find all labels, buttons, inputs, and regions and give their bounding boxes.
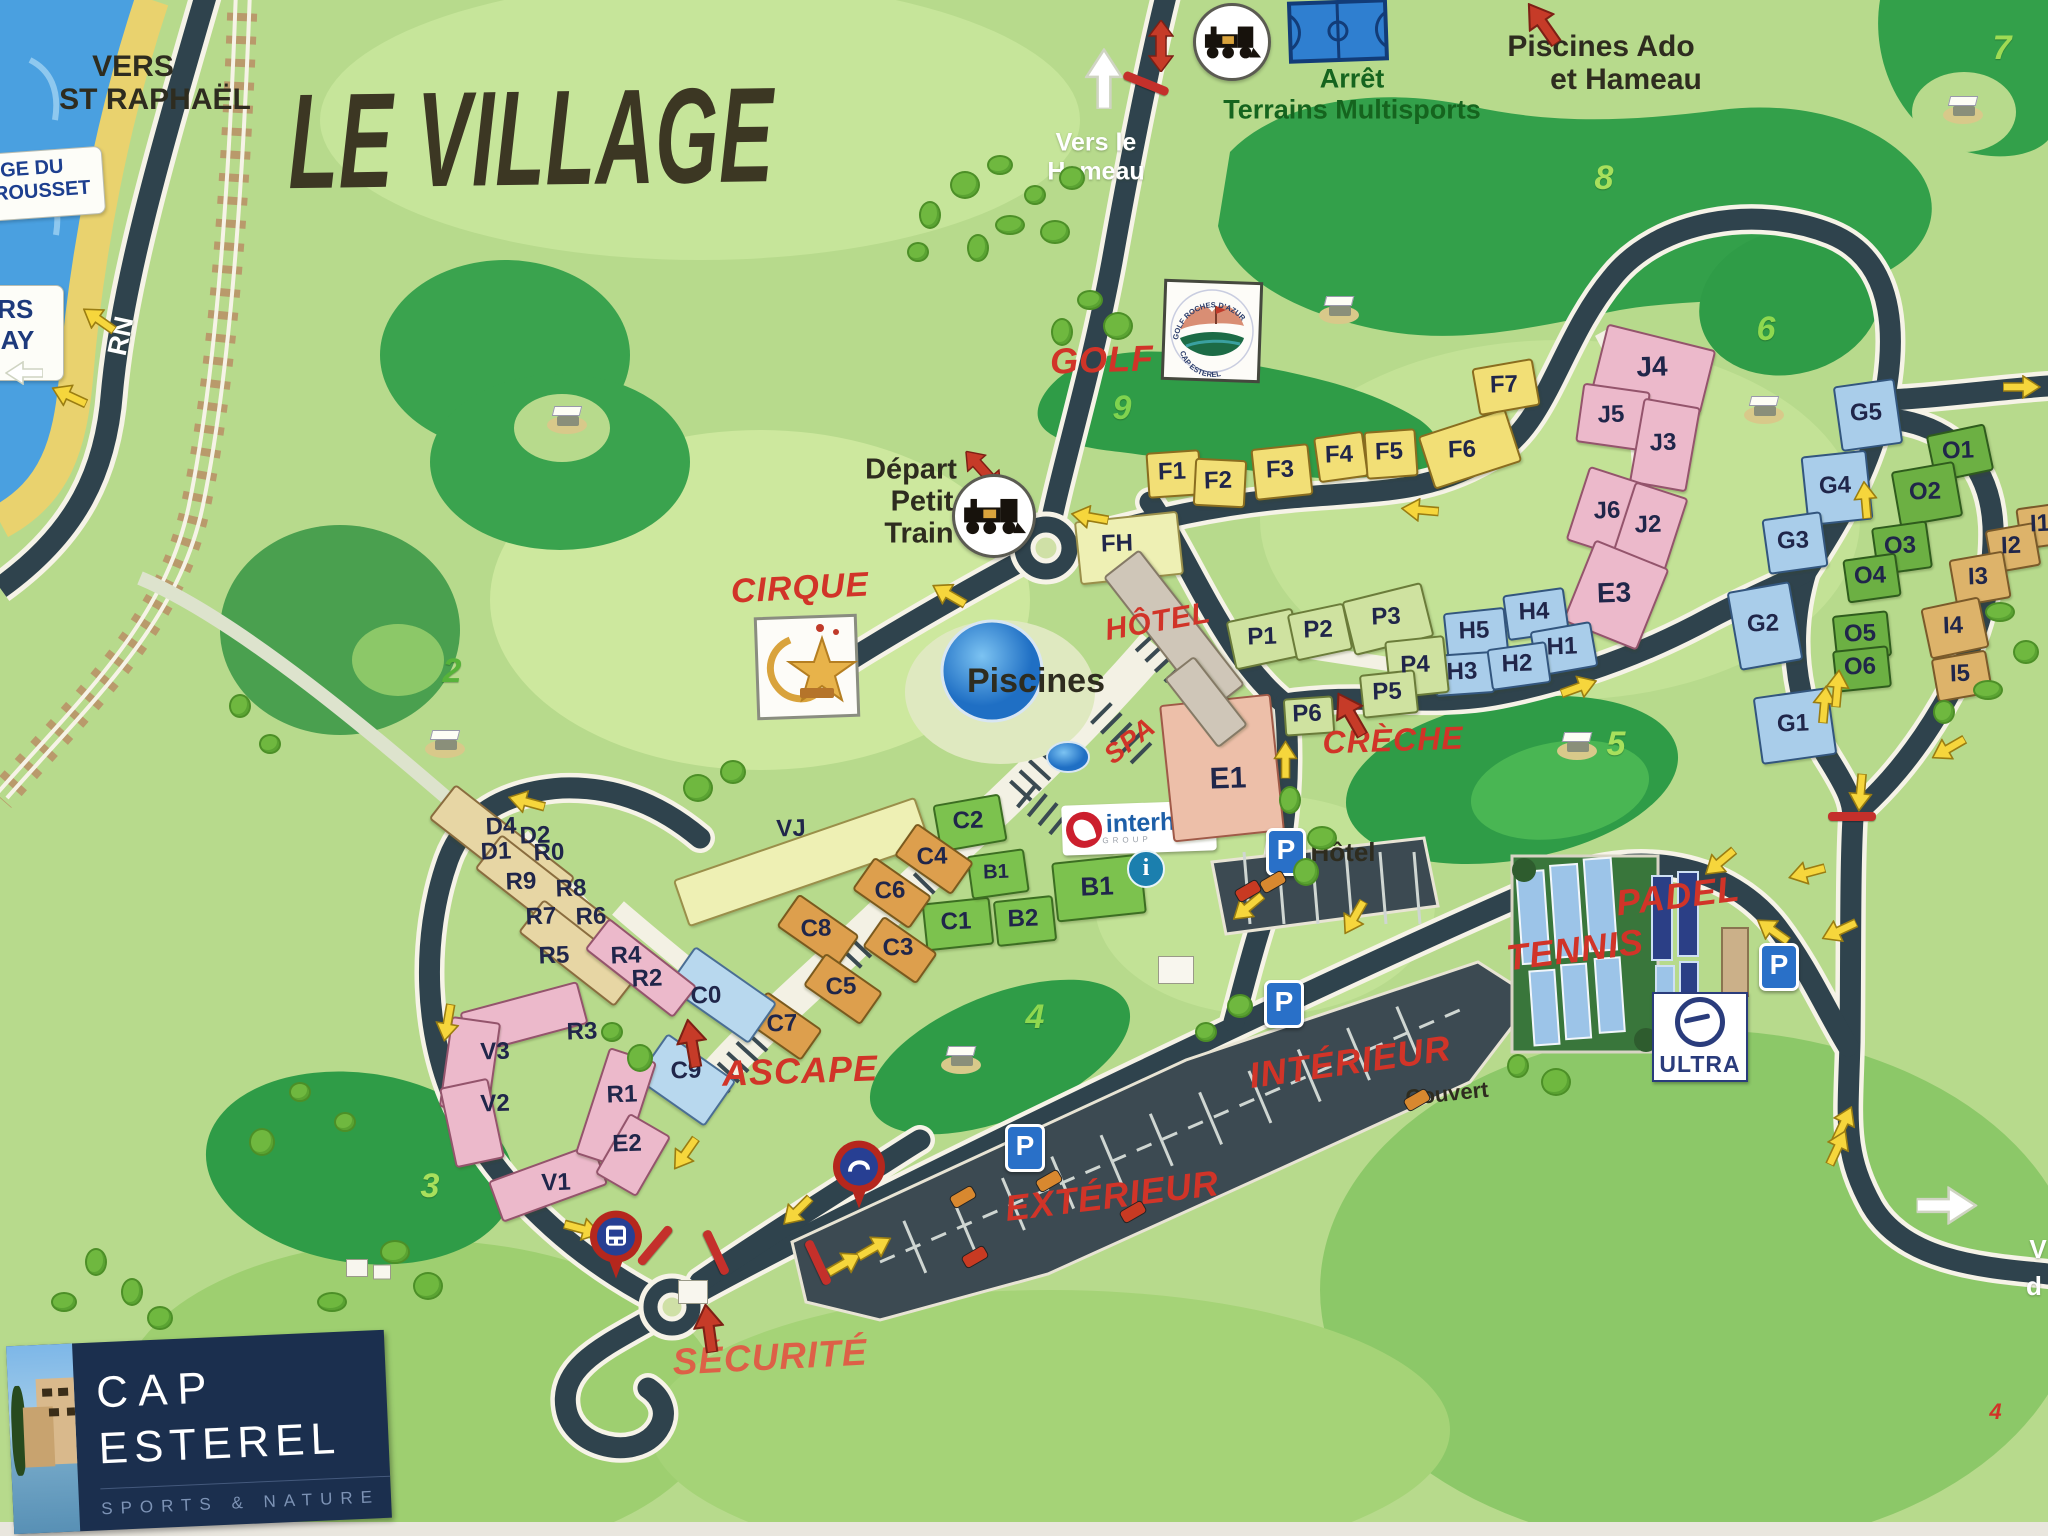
bush-icon <box>950 171 980 199</box>
bush-icon <box>1227 994 1253 1018</box>
building-label-F6: F6 <box>1448 438 1477 463</box>
building-label-I2: I2 <box>2001 534 2022 559</box>
service-building <box>678 1280 708 1304</box>
traffic-arrow <box>1400 491 1440 523</box>
label-v: V <box>2029 1236 2046 1262</box>
bush-icon <box>907 242 929 262</box>
building-label-F3: F3 <box>1266 458 1295 483</box>
label-d: d <box>2026 1273 2042 1299</box>
building-label-C5: C5 <box>825 974 857 999</box>
building-label-B1: B1 <box>983 862 1009 883</box>
building-label-R3: R3 <box>566 1019 598 1044</box>
map-title: LE VILLAGE <box>288 59 774 221</box>
sign-plage-line2: POURROUSSET <box>0 176 104 212</box>
building-label-I5: I5 <box>1950 662 1971 687</box>
bush-icon <box>1024 185 1046 205</box>
golf-cart-icon <box>1325 296 1355 320</box>
building-label-H3: H3 <box>1446 659 1478 684</box>
building-label-C3: C3 <box>882 935 914 960</box>
building-label-D1: D1 <box>480 839 512 864</box>
building-label-F1: F1 <box>1158 460 1187 485</box>
golf-club-logo: GOLF ROCHES D'AZUR CAP ESTEREL <box>1162 280 1261 381</box>
building-label-G4: G4 <box>1819 473 1852 498</box>
building-label-V2: V2 <box>480 1091 510 1116</box>
building-label-C6: C6 <box>874 878 906 903</box>
cap-logo-line2: ESTEREL <box>98 1412 390 1475</box>
building-label-VJ: VJ <box>776 816 806 841</box>
building-label-E2: E2 <box>612 1131 642 1156</box>
building-label-F4: F4 <box>1325 443 1354 468</box>
cap-logo-tagline: SPORTS & NATURE <box>100 1476 391 1520</box>
zone-number-3: 3 <box>421 1169 440 1203</box>
building-label-P5: P5 <box>1372 679 1402 704</box>
parking-sign: P <box>1264 980 1304 1028</box>
building-label-R2: R2 <box>631 966 663 991</box>
building-label-E3: E3 <box>1596 578 1631 607</box>
bush-icon <box>1933 700 1955 724</box>
bush-icon <box>413 1272 443 1300</box>
bush-icon <box>1507 1054 1529 1078</box>
bush-icon <box>1103 312 1133 340</box>
direction-arrow <box>5 356 43 385</box>
building-label-D4: D4 <box>485 814 517 839</box>
bush-icon <box>627 1044 653 1072</box>
petit-train-icon <box>1193 3 1271 81</box>
building-label-I4: I4 <box>1943 614 1964 639</box>
cap-logo-line1: CAP <box>95 1356 387 1419</box>
bush-icon <box>683 774 713 802</box>
service-building <box>373 1265 391 1280</box>
label-et-hameau: et Hameau <box>1550 65 1702 95</box>
golf-cart-icon <box>431 730 461 754</box>
building-label-C4: C4 <box>916 844 948 869</box>
building-label-V1: V1 <box>541 1170 571 1195</box>
traffic-arrow <box>1842 772 1874 812</box>
building-label-C7: C7 <box>766 1011 798 1036</box>
building-label-G5: G5 <box>1850 400 1883 425</box>
bush-icon <box>85 1248 107 1276</box>
traffic-arrow <box>1852 479 1884 519</box>
bush-icon <box>967 234 989 262</box>
direction-arrow <box>1917 1186 1978 1232</box>
building-label-R0: R0 <box>533 840 565 865</box>
bush-icon <box>1985 602 2015 622</box>
building-label-J2: J2 <box>1634 513 1662 538</box>
bus-stop-pin <box>590 1211 644 1281</box>
small-pool <box>1047 742 1089 772</box>
sign-agay-line1: VERS <box>0 294 63 325</box>
building-label-P2: P2 <box>1303 617 1333 642</box>
label-st-rapha-l: ST RAPHAËL <box>59 85 251 115</box>
label-d-part: Départ <box>865 456 957 485</box>
building-label-R9: R9 <box>505 869 537 894</box>
zone-number-7: 7 <box>1993 31 2012 65</box>
bush-icon <box>249 1128 275 1156</box>
building-label-H4: H4 <box>1518 599 1550 624</box>
building-label-P4: P4 <box>1400 652 1430 677</box>
bush-icon <box>2013 640 2039 664</box>
building-label-P3: P3 <box>1371 604 1401 629</box>
building-label-J5: J5 <box>1597 403 1625 428</box>
bush-icon <box>147 1306 173 1330</box>
building-label-E1: E1 <box>1209 763 1247 794</box>
multisport-court-icon <box>1289 0 1387 61</box>
paper-edge <box>0 1522 2048 1536</box>
building-label-B1: B1 <box>1080 872 1114 899</box>
building-label-C0: C0 <box>690 983 722 1008</box>
building-label-O3: O3 <box>1884 533 1917 558</box>
building-label-F7: F7 <box>1490 373 1519 398</box>
traffic-arrow <box>2003 375 2041 404</box>
building-label-R1: R1 <box>606 1082 638 1107</box>
bush-icon <box>1195 1022 1217 1042</box>
bush-icon <box>601 1022 623 1042</box>
bush-icon <box>334 1112 356 1132</box>
building-label-C2: C2 <box>952 808 984 833</box>
bush-icon <box>1541 1068 1571 1096</box>
train-stop-double-arrow <box>1148 20 1174 77</box>
poi-arrow <box>690 1300 734 1354</box>
zone-number-4: 4 <box>1026 1000 1045 1034</box>
label-petit: Petit <box>891 488 954 517</box>
ultra-text: ULTRA <box>1659 1051 1740 1078</box>
boules-strip <box>1722 928 1748 996</box>
golf-cart-icon <box>1750 396 1780 420</box>
building-label-R7: R7 <box>525 904 557 929</box>
golf-cart-icon <box>947 1046 977 1070</box>
building-label-H5: H5 <box>1458 618 1490 643</box>
ultra-logo: ULTRA <box>1652 992 1748 1082</box>
building-label-V3: V3 <box>480 1039 510 1064</box>
bush-icon <box>987 155 1013 175</box>
building-label-P1: P1 <box>1247 624 1277 649</box>
building-label-I1: I1 <box>2030 512 2048 537</box>
road-barrier-icon <box>1828 812 1876 821</box>
bush-icon <box>1059 166 1085 190</box>
bush-icon <box>51 1292 77 1312</box>
building-label-G2: G2 <box>1747 611 1780 636</box>
traffic-arrow <box>1824 668 1856 708</box>
label-golf: GOLF <box>1049 340 1154 380</box>
label-4: 4 <box>1989 1401 2002 1423</box>
label-train: Train <box>884 520 953 549</box>
label-arr-t: Arrêt <box>1320 66 1385 93</box>
building-label-I3: I3 <box>1968 565 1989 590</box>
building-label-FH: FH <box>1101 531 1134 556</box>
golf-cart-icon <box>553 406 583 430</box>
golf-cart-icon <box>1563 732 1593 756</box>
building-label-H2: H2 <box>1501 651 1533 676</box>
building-label-G3: G3 <box>1777 528 1810 553</box>
bush-icon <box>1307 826 1337 850</box>
service-building <box>1158 956 1194 984</box>
building-label-B2: B2 <box>1007 906 1039 931</box>
sign-plage: PLAGE DU POURROUSSET <box>0 146 106 227</box>
zone-number-6: 6 <box>1757 312 1776 346</box>
resort-map: { "title": "LE VILLAGE", "cap_logo": {"l… <box>0 0 2048 1536</box>
parking-sign: P <box>1759 943 1799 991</box>
bush-icon <box>229 694 251 718</box>
ultra-ring-icon <box>1675 997 1725 1047</box>
building-label-R8: R8 <box>555 876 587 901</box>
bush-icon <box>919 201 941 229</box>
label-cirque: CIRQUE <box>730 567 870 608</box>
bush-icon <box>121 1278 143 1306</box>
building-label-F5: F5 <box>1375 440 1404 465</box>
zone-number-8: 8 <box>1595 161 1614 195</box>
cap-esterel-photo <box>6 1343 80 1534</box>
building-label-O5: O5 <box>1844 621 1877 646</box>
building-label-J4: J4 <box>1636 352 1668 381</box>
interhome-bird-icon <box>1065 811 1102 848</box>
building-label-C1: C1 <box>940 909 972 934</box>
label-vers-le: Vers le <box>1056 131 1137 156</box>
golf-cart-icon <box>1949 96 1979 120</box>
bush-icon <box>1051 318 1073 346</box>
label-piscines: Piscines <box>967 664 1105 698</box>
building-label-J6: J6 <box>1593 499 1621 524</box>
building-label-R5: R5 <box>538 943 570 968</box>
bush-icon <box>720 760 746 784</box>
service-building <box>346 1259 368 1277</box>
petit-train-icon <box>952 474 1036 558</box>
bush-icon <box>259 734 281 754</box>
zone-number-9: 9 <box>1113 391 1132 425</box>
building-label-O1: O1 <box>1942 438 1975 463</box>
building-label-C8: C8 <box>800 916 832 941</box>
map-background: GOLF ROCHES D'AZUR CAP ESTEREL <box>0 0 2048 1536</box>
building-label-P6: P6 <box>1292 701 1322 726</box>
building-label-O4: O4 <box>1854 563 1887 588</box>
bush-icon <box>1077 290 1103 310</box>
zone-number-2: 2 <box>443 654 462 688</box>
bush-icon <box>1040 220 1070 244</box>
building-label-H1: H1 <box>1546 634 1578 659</box>
building-label-O2: O2 <box>1909 479 1942 504</box>
gate-pin <box>833 1141 887 1211</box>
building-label-F2: F2 <box>1204 469 1233 494</box>
parking-sign: P <box>1005 1124 1045 1172</box>
cap-esterel-logo: CAP ESTEREL SPORTS & NATURE <box>6 1330 392 1534</box>
sign-agay-line2: AGAY <box>0 325 63 356</box>
bush-icon <box>1293 858 1319 886</box>
bush-icon <box>1973 680 2003 700</box>
cirque-logo <box>755 615 858 718</box>
building-label-J3: J3 <box>1649 431 1677 456</box>
bush-icon <box>380 1240 410 1264</box>
bush-icon <box>1279 786 1301 814</box>
traffic-arrow <box>1274 741 1303 779</box>
zone-number-5: 5 <box>1607 727 1626 761</box>
label-terrains-multisports: Terrains Multisports <box>1223 97 1481 124</box>
info-icon: i <box>1127 850 1165 888</box>
building-label-G1: G1 <box>1777 711 1810 736</box>
building-label-R6: R6 <box>575 904 607 929</box>
label-vers: VERS <box>92 52 174 82</box>
bush-icon <box>289 1082 311 1102</box>
bush-icon <box>995 215 1025 235</box>
bush-icon <box>317 1292 347 1312</box>
label-ascape: ASCAPE <box>721 1050 878 1091</box>
